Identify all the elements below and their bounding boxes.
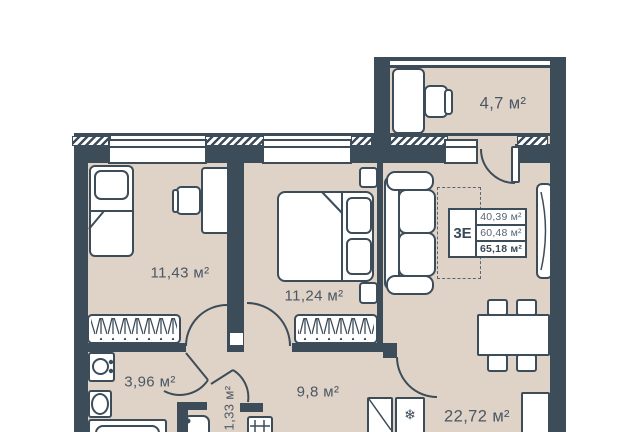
balcony-glazing-line <box>390 61 550 65</box>
wall-bedrooms-bottom-left <box>74 343 186 352</box>
balcony-chair-back <box>444 89 453 115</box>
room-label-kitchen-living: 22,72 м² <box>444 408 510 427</box>
dining-chair-4 <box>516 354 537 372</box>
unit-area-row-1: 40,39 м² <box>477 210 525 226</box>
wall-bedroom-divider <box>227 163 244 352</box>
double-bed-pillow-top <box>346 197 372 234</box>
kitchen-counter <box>521 392 550 432</box>
hatch-pier-4 <box>390 136 448 146</box>
sofa-armrest-bottom <box>386 275 434 295</box>
balcony-bench <box>392 68 425 134</box>
divider-door-notch <box>230 333 243 345</box>
room-label-bedroom2: 11,24 м² <box>284 288 343 305</box>
window-bedroom1 <box>108 139 207 164</box>
room-label-bedroom1: 11,43 м² <box>150 265 209 282</box>
desk-chair-seat <box>176 186 201 215</box>
sofa-cushion-bottom <box>398 232 436 277</box>
dining-table <box>477 314 550 356</box>
window-frame-line <box>263 146 351 148</box>
wall-bedroom2-living <box>377 163 383 352</box>
wall-wc-right-stub <box>240 403 263 412</box>
balcony-door-opening <box>478 144 515 163</box>
kitchen-cabinet <box>367 397 393 432</box>
window-bedroom2 <box>262 139 352 164</box>
unit-info-panel: 3Е 40,39 м² 60,48 м² 65,18 м² <box>448 208 527 258</box>
room-label-wc: 1,33 м² <box>222 386 237 431</box>
unit-area-row-3: 65,18 м² <box>477 242 525 256</box>
wall-bathroom-right <box>177 402 188 432</box>
sofa-armrest-top <box>386 171 434 191</box>
window-frame-line <box>109 146 206 148</box>
wall-bedrooms-bottom-right <box>292 343 397 352</box>
nightstand-bottom <box>359 282 378 304</box>
sink-bowl <box>91 393 109 415</box>
hatch-pier-1 <box>72 136 111 146</box>
unit-label: 3Е <box>450 210 477 256</box>
sofa-cushion-top <box>398 189 436 234</box>
wall-right <box>550 57 566 432</box>
desk-chair-back <box>172 189 179 213</box>
double-bed-pillow-bottom <box>346 238 372 275</box>
hatch-pier-2 <box>205 136 264 146</box>
window-frame-line <box>445 146 477 148</box>
bathtub-inner <box>95 425 160 432</box>
dining-chair-3 <box>487 354 508 372</box>
nightstand-top <box>359 167 378 188</box>
room-label-balcony: 4,7 м² <box>480 95 527 114</box>
balcony-door-leaf <box>511 146 520 183</box>
towel-rail-unit <box>247 416 273 432</box>
snowflake-icon: ❄ <box>404 407 416 424</box>
wall-bathroom-wc-stub <box>188 402 207 410</box>
wall-hall-living-corner <box>383 343 397 358</box>
wall-balcony-left <box>374 57 390 137</box>
floor-plan: ❄ 4,7 м² 11,43 м² 11,24 м² 3,96 м² 1,33 … <box>0 0 640 432</box>
single-bed-pillow <box>94 170 129 200</box>
hatch-pier-5 <box>517 136 548 146</box>
unit-area-row-2: 60,48 м² <box>477 226 525 242</box>
wall-left <box>74 138 88 432</box>
room-label-hallway: 9,8 м² <box>297 384 340 401</box>
washing-machine-drum <box>92 358 109 375</box>
window-living <box>444 139 478 164</box>
hatch-pier-3 <box>351 136 372 146</box>
room-label-bathroom: 3,96 м² <box>124 374 175 391</box>
